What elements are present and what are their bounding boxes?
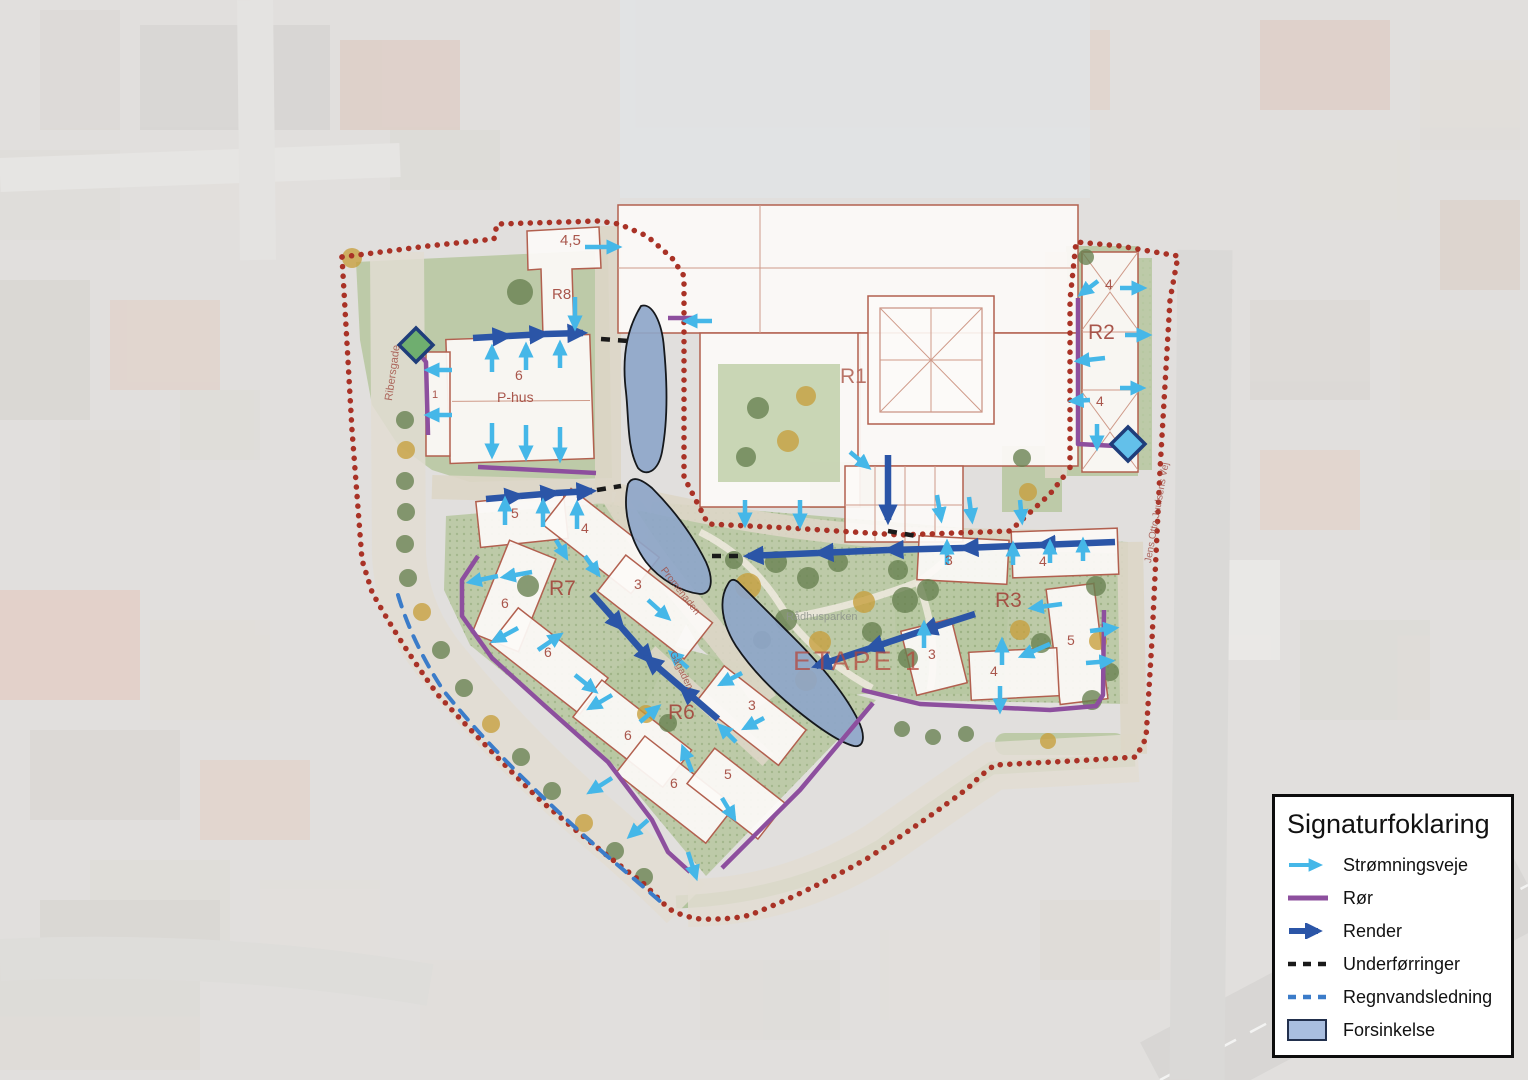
map-label-4: 4 (1096, 394, 1104, 408)
legend-label: Forsinkelse (1343, 1020, 1435, 1041)
map-label-3: 3 (945, 553, 953, 567)
map-label-6: 6 (624, 728, 632, 742)
map-label-1: 1 (432, 390, 438, 401)
render-arrow-icon (1287, 923, 1333, 939)
map-label-6: 6 (544, 645, 552, 659)
map-label-5: 5 (1067, 633, 1075, 647)
legend-item-regnvandsledning: Regnvandsledning (1287, 986, 1499, 1008)
map-label-6: 6 (515, 368, 523, 382)
map-label-5: 5 (511, 506, 519, 520)
legend-label: Strømningsveje (1343, 855, 1468, 876)
legend-item-ror: Rør (1287, 887, 1499, 909)
map-label-r1: R1 (840, 366, 867, 387)
map-label-p-hus: P-hus (497, 390, 534, 404)
map-label-rådhusparken: Rådhusparken (786, 612, 858, 623)
map-label-r6: R6 (668, 702, 695, 723)
map-label-4: 4 (581, 521, 589, 535)
map-label-4: 4 (1039, 554, 1047, 568)
map-label-3: 3 (748, 698, 756, 712)
legend-label: Render (1343, 921, 1402, 942)
map-label-r3: R3 (995, 590, 1022, 611)
map-label-3: 3 (634, 577, 642, 591)
map-label-r2: R2 (1088, 322, 1115, 343)
legend-title: Signaturfoklaring (1287, 809, 1499, 840)
ror-line-icon (1287, 893, 1333, 903)
legend-label: Rør (1343, 888, 1373, 909)
map-label-6: 6 (501, 596, 509, 610)
forsinkelse-swatch-icon (1287, 1019, 1333, 1041)
regnvandsledning-dashed-icon (1287, 993, 1333, 1001)
legend-item-stromningsveje: Strømningsveje (1287, 854, 1499, 876)
map-label-4-5: 4,5 (560, 233, 581, 248)
legend-label: Underførringer (1343, 954, 1460, 975)
map-label-6: 6 (670, 776, 678, 790)
building-1 (426, 352, 450, 456)
map-label-4: 4 (990, 664, 998, 678)
pond-north (625, 305, 667, 472)
legend-item-render: Render (1287, 920, 1499, 942)
legend-box: Signaturfoklaring Strømningsveje Rør Ren… (1272, 794, 1514, 1058)
map-label-r7: R7 (549, 578, 576, 599)
underforringer-dashed-icon (1287, 960, 1333, 968)
map-label-5: 5 (724, 767, 732, 781)
map-label-3: 3 (928, 647, 936, 661)
map-label-r8: R8 (552, 287, 571, 302)
site-plan-page: { "legend": { "title": "Signaturfoklarin… (0, 0, 1528, 1080)
legend-item-underforringer: Underførringer (1287, 953, 1499, 975)
legend-item-forsinkelse: Forsinkelse (1287, 1019, 1499, 1041)
map-label-etape-1: ETAPE 1 (793, 648, 923, 675)
legend-label: Regnvandsledning (1343, 987, 1492, 1008)
stromningsveje-arrow-icon (1287, 858, 1333, 872)
map-label-4: 4 (1105, 277, 1113, 291)
